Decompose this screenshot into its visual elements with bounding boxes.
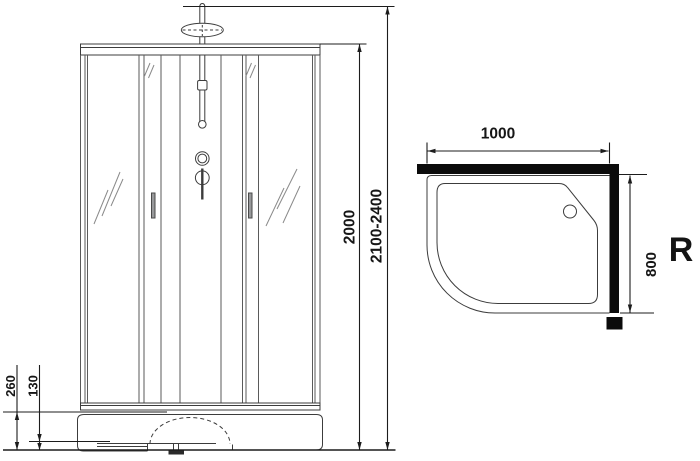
- dimension-800: 800: [619, 175, 661, 314]
- shower-column: [181, 4, 223, 129]
- door-handle-left: [152, 193, 156, 218]
- glass-hatch-left: [94, 172, 123, 224]
- cabin-top-bar: [81, 44, 321, 55]
- dim-2000-label: 2000: [342, 210, 359, 244]
- pipe-bracket: [198, 81, 207, 91]
- dim-130-label: 130: [26, 375, 41, 397]
- glass-hatch-marks: [94, 63, 300, 226]
- glass-hatch-right: [266, 169, 300, 226]
- dim-2100-2400-label: 2100-2400: [369, 189, 386, 263]
- wall-profile-vertical: [610, 174, 620, 313]
- tray-foot-base: [169, 451, 185, 455]
- door-handle-right: [249, 193, 253, 218]
- wall-profile-endcap: [607, 317, 623, 330]
- shower-cabin-technical-drawing: 2000 2100-2400 260 130: [0, 0, 700, 461]
- mixer-knobs: [195, 152, 209, 200]
- front-view-dimensions: 2000 2100-2400 260 130: [3, 7, 396, 451]
- dim-800-label: 800: [643, 252, 660, 277]
- tray-front-outline: [78, 415, 323, 452]
- tray-top-outer-outline: [427, 176, 610, 314]
- dimension-1000: 1000: [427, 126, 610, 164]
- shower-cabin-front-view: [78, 4, 323, 455]
- drain-hole: [564, 205, 577, 218]
- tray-access-arc: [150, 418, 230, 445]
- right-hand-orientation-label: R: [669, 231, 694, 269]
- tray-front: [78, 415, 323, 455]
- dim-1000-label: 1000: [481, 126, 515, 143]
- dimension-2000: 2000: [320, 44, 367, 450]
- dim-260-label: 260: [3, 375, 18, 397]
- cabin-bottom-bar: [81, 403, 321, 410]
- shower-tray-top-view: 1000 800 R: [417, 126, 693, 330]
- pipe-end: [199, 121, 207, 129]
- tray-top-inner-outline: [437, 184, 598, 304]
- dimension-2100-2400: 2100-2400: [183, 7, 395, 451]
- shower-pipe: [200, 4, 205, 123]
- wall-profile-horizontal: [417, 164, 619, 174]
